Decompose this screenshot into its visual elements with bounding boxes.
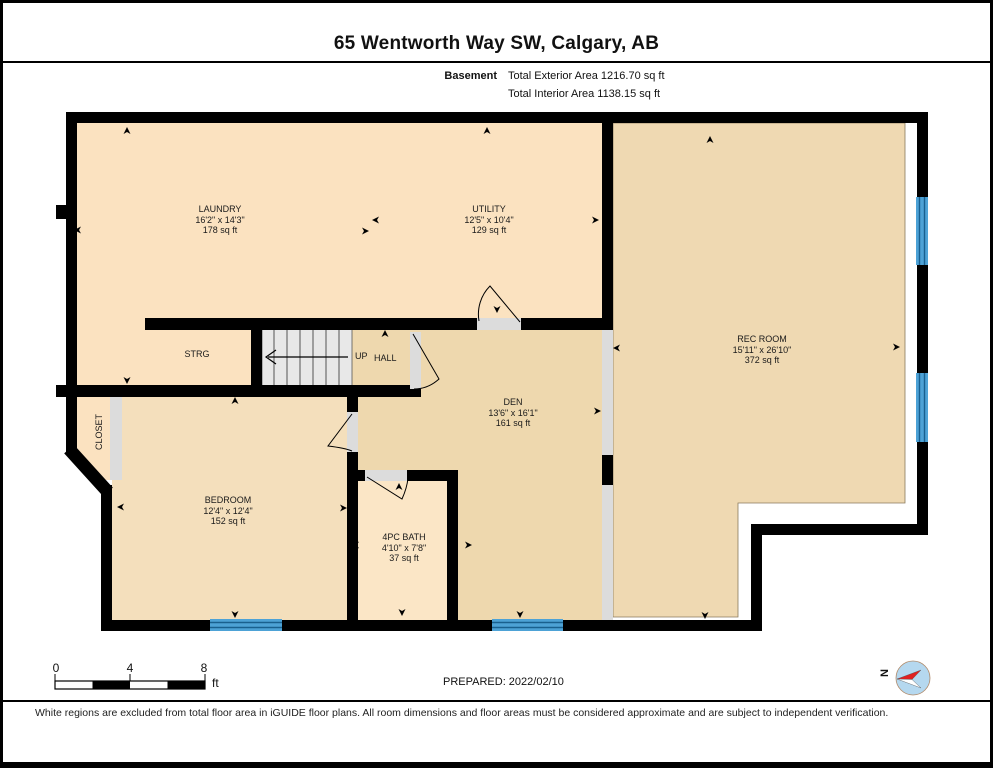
room-name: 4PC BATH — [382, 532, 426, 543]
prepared-date: PREPARED: 2022/02/10 — [443, 676, 564, 688]
room-dims: 4'10" x 7'8" — [382, 543, 426, 554]
room-name: BEDROOM — [203, 495, 252, 506]
room-dims: 15'11" x 26'10" — [733, 345, 792, 356]
floor-label: Basement — [380, 70, 497, 82]
room-area: 161 sq ft — [488, 418, 537, 429]
compass-icon — [896, 661, 930, 695]
stairs — [262, 324, 352, 391]
room-name: UTILITY — [464, 204, 513, 215]
footer-divider — [0, 700, 993, 702]
total-exterior-area: Total Exterior Area 1216.70 sq ft — [508, 70, 665, 82]
room-dims: 12'4" x 12'4" — [203, 506, 252, 517]
laundry-utility-floor — [71, 117, 602, 330]
room-name: DEN — [488, 397, 537, 408]
room-dims: 12'5" x 10'4" — [464, 215, 513, 226]
scale-unit: ft — [212, 676, 219, 690]
room-area: 129 sq ft — [464, 225, 513, 236]
room-area: 37 sq ft — [382, 553, 426, 564]
page-title: 65 Wentworth Way SW, Calgary, AB — [0, 33, 993, 55]
floorplan-page: 65 Wentworth Way SW, Calgary, AB Basemen… — [0, 0, 993, 768]
room-label-bedroom: BEDROOM 12'4" x 12'4" 152 sq ft — [203, 495, 252, 527]
scale-tick-0: 0 — [53, 661, 60, 675]
room-name: LAUNDRY — [195, 204, 244, 215]
room-floors — [71, 117, 905, 620]
den-floor-west — [352, 397, 421, 477]
window-right-2 — [916, 373, 928, 442]
room-label-recroom: REC ROOM 15'11" x 26'10" 372 sq ft — [733, 334, 792, 366]
disclaimer-text: White regions are excluded from total fl… — [35, 707, 888, 719]
stairs-up-label: UP — [355, 351, 368, 361]
room-name: REC ROOM — [733, 334, 792, 345]
room-label-laundry: LAUNDRY 16'2" x 14'3" 178 sq ft — [195, 204, 244, 236]
scale-tick-8: 8 — [201, 661, 208, 675]
room-area: 152 sq ft — [203, 516, 252, 527]
room-label-storage: STRG — [184, 349, 209, 360]
total-interior-area: Total Interior Area 1138.15 sq ft — [508, 88, 660, 100]
room-dims: 13'6" x 16'1" — [488, 408, 537, 419]
room-name: STRG — [184, 349, 209, 360]
room-label-closet: CLOSET — [94, 414, 104, 450]
room-label-hall: HALL — [374, 353, 397, 363]
compass-north-label: N — [879, 669, 891, 677]
room-label-den: DEN 13'6" x 16'1" 161 sq ft — [488, 397, 537, 429]
window-bottom-den — [492, 619, 563, 631]
scale-tick-4: 4 — [127, 661, 134, 675]
room-label-utility: UTILITY 12'5" x 10'4" 129 sq ft — [464, 204, 513, 236]
window-bottom-bedroom — [210, 619, 282, 631]
storage-floor — [71, 330, 251, 391]
window-right-1 — [916, 197, 928, 265]
header-divider — [0, 61, 993, 63]
room-dims: 16'2" x 14'3" — [195, 215, 244, 226]
room-area: 372 sq ft — [733, 355, 792, 366]
floorplan-drawing — [0, 0, 993, 768]
room-label-bath: 4PC BATH 4'10" x 7'8" 37 sq ft — [382, 532, 426, 564]
room-area: 178 sq ft — [195, 225, 244, 236]
scale-bar — [55, 674, 205, 689]
